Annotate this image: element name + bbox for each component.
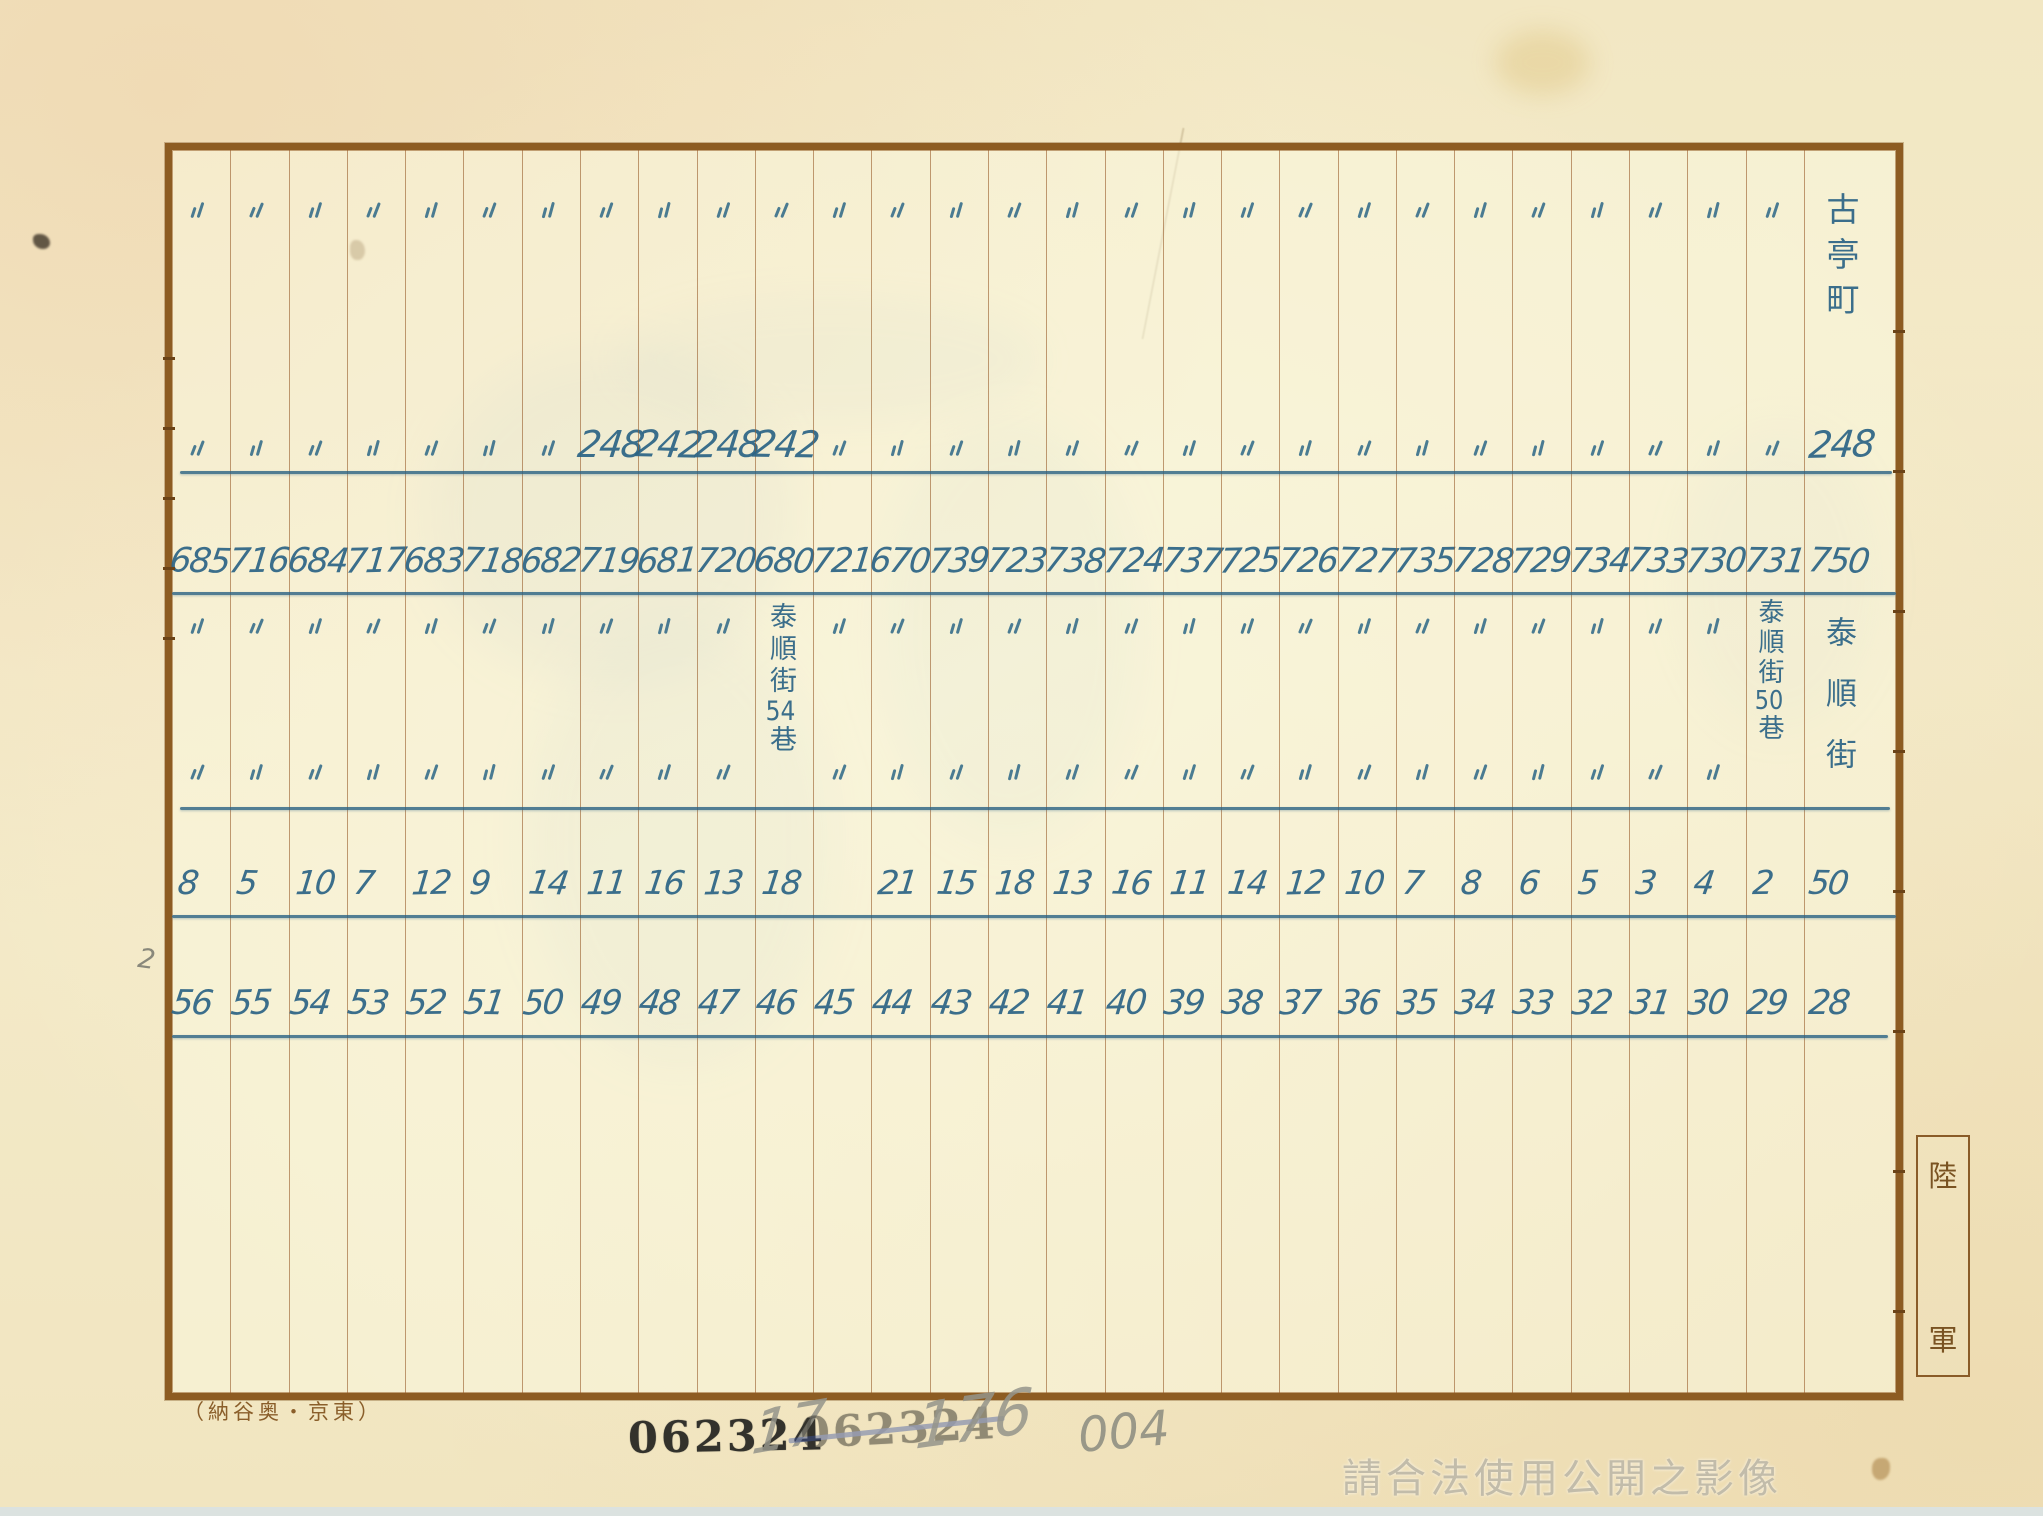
ledger-number: 7 — [352, 866, 375, 899]
ledger-number: 49 — [579, 986, 622, 1020]
ditto-mark — [715, 762, 732, 787]
ditto-mark — [1006, 761, 1024, 786]
ditto-mark — [1356, 616, 1372, 640]
ditto-mark — [248, 199, 266, 224]
ledger-column: 72145 — [813, 150, 872, 1393]
ditto-mark — [1356, 200, 1372, 224]
scanned-ledger-page: { "table": { "district_label": "古亭町", "d… — [0, 0, 2043, 1516]
ledger-number: 670 — [868, 544, 931, 579]
ditto-mark — [1647, 437, 1665, 462]
ditto-mark — [657, 762, 673, 786]
ledger-number: 734 — [1568, 544, 1631, 578]
ledger-column: 729633 — [1512, 150, 1571, 1393]
army-label-bottom: 軍 — [1928, 1317, 1957, 1359]
ledger-number: 721 — [810, 544, 873, 579]
army-label-box: 陸 軍 — [1916, 1135, 1970, 1377]
ledger-column: 6841054 — [289, 150, 348, 1393]
ink-rule-line — [172, 915, 1896, 918]
ledger-number: 737 — [1160, 544, 1223, 579]
ledger-number: 14 — [1226, 866, 1268, 899]
binding-tick — [163, 567, 175, 570]
usage-watermark: 請合法使用公開之影像 — [1342, 1446, 1782, 1504]
ditto-mark — [1473, 438, 1489, 462]
street-name: 泰順街 — [765, 602, 796, 698]
ledger-number: 5 — [1576, 866, 1598, 900]
ledger-table-content: 6858567165556841054717753683125271895168… — [172, 150, 1896, 1393]
ledger-table: 6858567165556841054717753683125271895168… — [165, 143, 1903, 1400]
binding-tick — [163, 497, 175, 500]
ditto-mark — [1531, 761, 1549, 786]
ledger-column: 734532 — [1571, 150, 1630, 1393]
ledger-number: 248 — [1807, 425, 1875, 464]
ledger-number: 5 — [235, 866, 259, 899]
ledger-column: 730430 — [1687, 150, 1746, 1393]
ditto-mark — [1473, 616, 1490, 641]
scanner-edge — [0, 1507, 2043, 1516]
ledger-number: 717 — [344, 543, 406, 579]
ditto-mark — [307, 438, 324, 463]
ditto-mark — [1298, 438, 1315, 463]
ditto-mark — [1705, 199, 1723, 224]
ditto-mark — [365, 616, 382, 641]
binding-tick — [1893, 330, 1905, 333]
ditto-mark — [1356, 438, 1373, 463]
ditto-mark — [716, 200, 732, 224]
ledger-number: 50 — [1807, 866, 1849, 899]
ditto-mark — [1764, 438, 1781, 463]
ditto-mark — [424, 200, 441, 225]
ditto-mark — [1531, 437, 1549, 462]
ditto-mark — [773, 199, 791, 224]
ink-rule-line — [180, 471, 1892, 474]
ledger-column: 7391543 — [930, 150, 989, 1393]
ditto-mark — [1705, 615, 1723, 640]
ledger-number: 34 — [1453, 986, 1496, 1020]
ledger-column: 2426811648 — [638, 150, 697, 1393]
ditto-mark — [1006, 200, 1023, 225]
ditto-mark — [1181, 615, 1199, 640]
binding-tick — [1893, 1310, 1905, 1313]
ledger-number: 54 — [288, 986, 331, 1020]
ledger-number: 11 — [585, 866, 627, 900]
ledger-number: 10 — [294, 866, 336, 900]
ditto-mark — [365, 762, 382, 787]
ledger-number: 724 — [1102, 544, 1165, 579]
ledger-number: 18 — [760, 866, 802, 899]
ditto-mark — [1239, 438, 1256, 463]
ledger-number: 36 — [1336, 986, 1380, 1020]
ditto-mark — [307, 616, 323, 640]
ledger-number: 14 — [526, 866, 569, 900]
ditto-mark — [1648, 200, 1664, 224]
ledger-number: 37 — [1278, 986, 1321, 1021]
ditto-mark — [307, 200, 323, 224]
ledger-column: 7241640 — [1105, 150, 1164, 1393]
ledger-number: 720 — [693, 544, 756, 578]
ledger-number: 30 — [1687, 985, 1730, 1020]
binding-tick — [1893, 1170, 1905, 1173]
ditto-mark — [656, 615, 674, 640]
ditto-mark — [1590, 438, 1606, 462]
ditto-mark — [948, 200, 965, 225]
ditto-mark — [1356, 762, 1373, 787]
ditto-mark — [1590, 762, 1606, 786]
ledger-number: 739 — [927, 543, 989, 579]
ditto-mark — [890, 616, 907, 641]
ledger-number: 13 — [702, 865, 743, 899]
ledger-number: 3 — [1634, 866, 1657, 899]
street-label-mid: 泰順街54巷 — [767, 602, 794, 757]
ledger-number: 728 — [1451, 544, 1514, 579]
ditto-mark — [1123, 761, 1141, 786]
ledger-number: 683 — [402, 544, 465, 578]
ditto-mark — [1006, 437, 1024, 462]
ditto-mark — [1589, 616, 1606, 641]
ditto-mark — [948, 438, 964, 462]
ledger-column: 717753 — [347, 150, 406, 1393]
ledger-number: 8 — [176, 866, 199, 899]
binding-tick — [1893, 890, 1905, 893]
ledger-column: 7271036 — [1338, 150, 1397, 1393]
ditto-mark — [189, 438, 206, 463]
ledger-number: 12 — [410, 865, 451, 899]
ledger-number: 40 — [1104, 985, 1147, 1020]
ledger-number: 726 — [1276, 544, 1339, 578]
ledger-column: 7251438 — [1221, 150, 1280, 1393]
ditto-mark — [1647, 761, 1665, 786]
ledger-column: 7231842 — [988, 150, 1047, 1393]
ditto-mark — [1239, 762, 1256, 787]
ledger-number: 242 — [750, 426, 820, 464]
pencil-page-mark: 2 — [136, 945, 157, 974]
ledger-number: 31 — [1628, 986, 1672, 1020]
ditto-mark — [1065, 438, 1081, 462]
ditto-mark — [540, 616, 557, 641]
ledger-column: 6821450 — [522, 150, 581, 1393]
street-suffix: 巷 — [765, 725, 796, 757]
ledger-number: 43 — [928, 986, 972, 1021]
ledger-number: 725 — [1218, 543, 1280, 579]
ditto-mark — [1531, 616, 1548, 641]
ditto-mark — [1181, 199, 1199, 224]
ditto-mark — [1473, 762, 1489, 786]
ledger-number: 35 — [1395, 985, 1438, 1020]
ditto-mark — [540, 200, 557, 225]
ledger-number: 718 — [460, 543, 524, 578]
ditto-mark — [948, 616, 965, 641]
ledger-number: 53 — [345, 986, 389, 1021]
ledger-column: 733331 — [1629, 150, 1688, 1393]
ditto-mark — [482, 761, 500, 786]
ditto-mark — [1182, 762, 1198, 786]
ditto-mark — [424, 616, 441, 641]
ditto-mark — [249, 762, 266, 787]
ditto-mark — [890, 762, 907, 787]
ditto-mark — [365, 438, 382, 463]
ditto-mark — [1182, 438, 1198, 462]
ledger-number: 729 — [1510, 543, 1572, 579]
pencil-mark: 004 — [1076, 1404, 1171, 1460]
ledger-number: 723 — [985, 544, 1048, 578]
ditto-mark — [482, 200, 499, 225]
ledger-number: 684 — [285, 544, 348, 579]
army-label-top: 陸 — [1928, 1153, 1957, 1195]
ditto-mark — [598, 761, 616, 786]
ledger-number: 727 — [1334, 543, 1398, 578]
ditto-mark — [832, 200, 848, 224]
ledger-column: 718951 — [463, 150, 522, 1393]
ledger-number: 8 — [1459, 866, 1482, 899]
ledger-number: 51 — [462, 986, 506, 1020]
ditto-mark — [1065, 616, 1082, 641]
ledger-number: 52 — [404, 986, 447, 1021]
ditto-mark — [716, 616, 732, 640]
ditto-mark — [1240, 616, 1256, 640]
ledger-number: 29 — [1745, 986, 1788, 1020]
ditto-mark — [1123, 616, 1139, 640]
ledger-column: 2487201347 — [697, 150, 756, 1393]
ledger-number: 47 — [696, 986, 739, 1021]
street-suffix: 巷 — [1754, 714, 1784, 744]
ledger-number: 6 — [1517, 866, 1540, 899]
ditto-mark — [1414, 438, 1431, 463]
ledger-number: 750 — [1806, 543, 1870, 578]
ink-rule-line — [172, 1035, 1888, 1038]
street-name: 泰順街 — [1754, 598, 1784, 688]
ditto-mark — [307, 762, 324, 787]
ledger-number: 15 — [934, 866, 976, 899]
ledger-number: 11 — [1168, 866, 1210, 900]
ledger-number: 730 — [1684, 544, 1747, 579]
binding-tick — [1893, 750, 1905, 753]
ink-rule-line — [180, 807, 1890, 810]
street-label-col28: 泰順街50巷 — [1756, 598, 1782, 744]
paper-stain — [1495, 30, 1590, 95]
ditto-mark — [1531, 200, 1548, 225]
paper-stain — [1872, 1458, 1890, 1480]
ditto-mark — [189, 762, 206, 787]
ledger-number: 56 — [170, 986, 214, 1020]
ditto-mark — [482, 616, 499, 641]
ledger-column: 685856 — [172, 150, 230, 1393]
ditto-mark — [541, 438, 557, 462]
ledger-number: 44 — [870, 986, 913, 1020]
ledger-number: 32 — [1570, 986, 1613, 1021]
ditto-mark — [1589, 200, 1606, 225]
ledger-column: 735735 — [1396, 150, 1455, 1393]
ditto-mark — [656, 199, 674, 224]
ditto-mark — [1765, 200, 1781, 224]
ledger-number: 733 — [1626, 543, 1690, 578]
ledger-column: 7381341 — [1046, 150, 1105, 1393]
ditto-mark — [1414, 200, 1431, 225]
ink-rule-line — [172, 592, 1896, 595]
ledger-column: 6831252 — [405, 150, 464, 1393]
ledger-column: 7261237 — [1279, 150, 1338, 1393]
ditto-mark — [249, 438, 266, 463]
binding-tick — [1893, 1030, 1905, 1033]
ledger-number: 45 — [812, 985, 855, 1020]
ditto-mark — [890, 438, 907, 463]
ditto-mark — [1706, 438, 1722, 462]
ledger-number: 12 — [1285, 865, 1326, 899]
ditto-mark — [1414, 616, 1431, 641]
street-number: 54 — [765, 698, 796, 725]
ditto-mark — [1065, 762, 1081, 786]
ditto-mark — [1473, 200, 1490, 225]
ledger-number: 681 — [636, 543, 698, 579]
ditto-mark — [1297, 199, 1315, 224]
ditto-mark — [424, 438, 440, 462]
ditto-mark — [599, 616, 615, 640]
ledger-number: 9 — [468, 866, 491, 899]
ditto-mark — [1065, 200, 1082, 225]
ledger-number: 4 — [1692, 866, 1716, 899]
street-number: 50 — [1754, 688, 1784, 714]
ledger-number: 55 — [230, 985, 273, 1020]
ditto-mark — [832, 762, 849, 787]
publisher-imprint: （納谷奥・京東） — [183, 1396, 383, 1426]
ditto-mark — [890, 200, 907, 225]
ledger-column: 716555 — [230, 150, 289, 1393]
ledger-number: 16 — [1109, 866, 1152, 900]
ledger-number: 2 — [1751, 866, 1774, 899]
ditto-mark — [482, 437, 500, 462]
ditto-mark — [1298, 762, 1315, 787]
street-label-wide: 泰順街 — [1822, 616, 1853, 799]
binding-tick — [1893, 470, 1905, 473]
ledger-number: 50 — [521, 985, 564, 1020]
ledger-number: 13 — [1051, 866, 1093, 899]
binding-tick — [1893, 610, 1905, 613]
ledger-column: 6702144 — [871, 150, 930, 1393]
ledger-column: 2487191149 — [580, 150, 639, 1393]
ledger-number: 685 — [168, 543, 232, 578]
ditto-mark — [541, 762, 557, 786]
ink-spot — [33, 234, 50, 249]
district-label: 古亭町 — [1824, 192, 1857, 327]
ditto-mark — [248, 615, 266, 640]
ditto-mark — [1240, 200, 1256, 224]
ledger-number: 38 — [1220, 986, 1264, 1021]
ledger-number: 21 — [877, 866, 919, 900]
ditto-mark — [1123, 437, 1141, 462]
ledger-number: 28 — [1807, 986, 1850, 1020]
binding-tick — [163, 637, 175, 640]
ledger-number: 735 — [1393, 544, 1456, 579]
ledger-number: 682 — [519, 544, 582, 579]
ledger-number: 48 — [637, 986, 681, 1021]
ditto-mark — [948, 762, 964, 786]
ledger-column: 731229 — [1746, 150, 1805, 1393]
ditto-mark — [190, 616, 206, 640]
ledger-number: 716 — [227, 544, 290, 579]
ditto-mark — [1123, 200, 1139, 224]
binding-tick — [163, 357, 175, 360]
ledger-number: 680 — [751, 543, 815, 578]
ledger-column: 728834 — [1454, 150, 1513, 1393]
ledger-number: 738 — [1043, 543, 1107, 578]
ditto-mark — [1414, 762, 1431, 787]
ledger-number: 33 — [1511, 986, 1555, 1021]
ditto-mark — [365, 200, 382, 225]
ledger-number: 16 — [643, 866, 685, 899]
ledger-number: 41 — [1045, 986, 1089, 1020]
ditto-mark — [599, 200, 615, 224]
ditto-mark — [832, 438, 849, 463]
ledger-column: 2426801846 — [755, 150, 814, 1393]
ditto-mark — [1706, 762, 1722, 786]
ledger-number: 10 — [1343, 866, 1385, 899]
ditto-mark — [1006, 616, 1023, 641]
ledger-number: 719 — [577, 544, 640, 579]
ledger-number: 731 — [1742, 544, 1805, 579]
ledger-number: 7 — [1400, 866, 1424, 899]
pencil-mark: 176 — [913, 1379, 1035, 1459]
ditto-mark — [424, 762, 440, 786]
ledger-number: 46 — [754, 986, 798, 1020]
ditto-mark — [1648, 616, 1664, 640]
ditto-mark — [1297, 615, 1315, 640]
binding-tick — [163, 427, 175, 430]
ledger-number: 39 — [1162, 986, 1205, 1020]
ledger-number: 42 — [987, 986, 1030, 1021]
ledger-column: 7371139 — [1163, 150, 1222, 1393]
ditto-mark — [832, 616, 848, 640]
ledger-number: 18 — [993, 865, 1034, 899]
ditto-mark — [190, 200, 206, 224]
